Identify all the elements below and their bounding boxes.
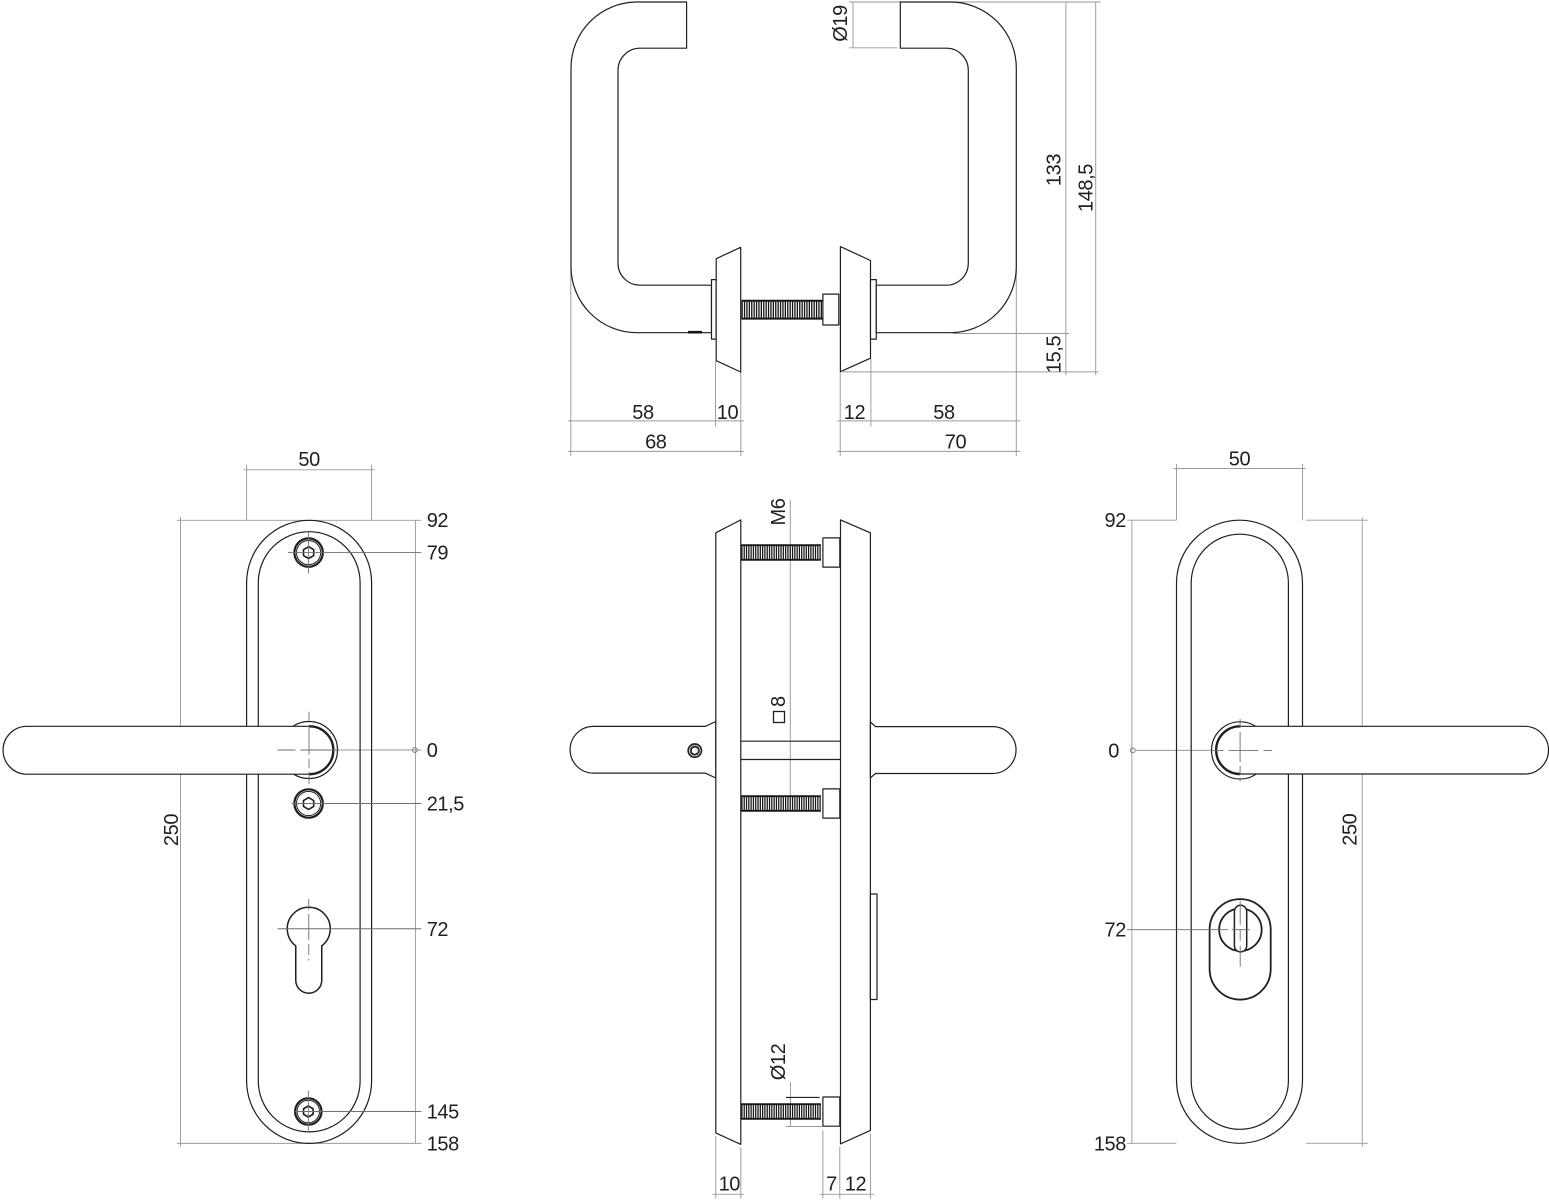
svg-text:68: 68 [645,431,667,453]
svg-text:10: 10 [719,1174,741,1196]
svg-text:133: 133 [1044,154,1066,186]
svg-text:158: 158 [1094,1133,1126,1155]
svg-text:92: 92 [427,510,449,532]
svg-text:12: 12 [845,1174,867,1196]
svg-text:72: 72 [1105,920,1127,942]
svg-text:0: 0 [1108,740,1119,762]
svg-text:8: 8 [768,696,790,707]
svg-text:250: 250 [161,814,183,846]
svg-text:15,5: 15,5 [1044,336,1066,374]
svg-text:148,5: 148,5 [1076,164,1098,212]
svg-text:92: 92 [1105,510,1127,532]
svg-text:58: 58 [933,402,955,424]
svg-text:145: 145 [427,1102,459,1124]
svg-text:7: 7 [826,1174,837,1196]
svg-text:250: 250 [1340,813,1362,845]
svg-text:50: 50 [298,449,320,471]
svg-text:21,5: 21,5 [427,794,465,816]
svg-text:58: 58 [632,402,654,424]
svg-text:0: 0 [427,740,438,762]
svg-text:Ø19: Ø19 [830,5,852,42]
svg-text:12: 12 [844,402,866,424]
svg-text:10: 10 [717,402,739,424]
svg-text:72: 72 [427,919,449,941]
svg-text:158: 158 [427,1133,459,1155]
svg-text:79: 79 [427,543,449,565]
svg-text:Ø12: Ø12 [768,1043,790,1080]
svg-text:70: 70 [945,431,967,453]
svg-text:M6: M6 [768,498,790,525]
svg-text:50: 50 [1229,449,1251,471]
